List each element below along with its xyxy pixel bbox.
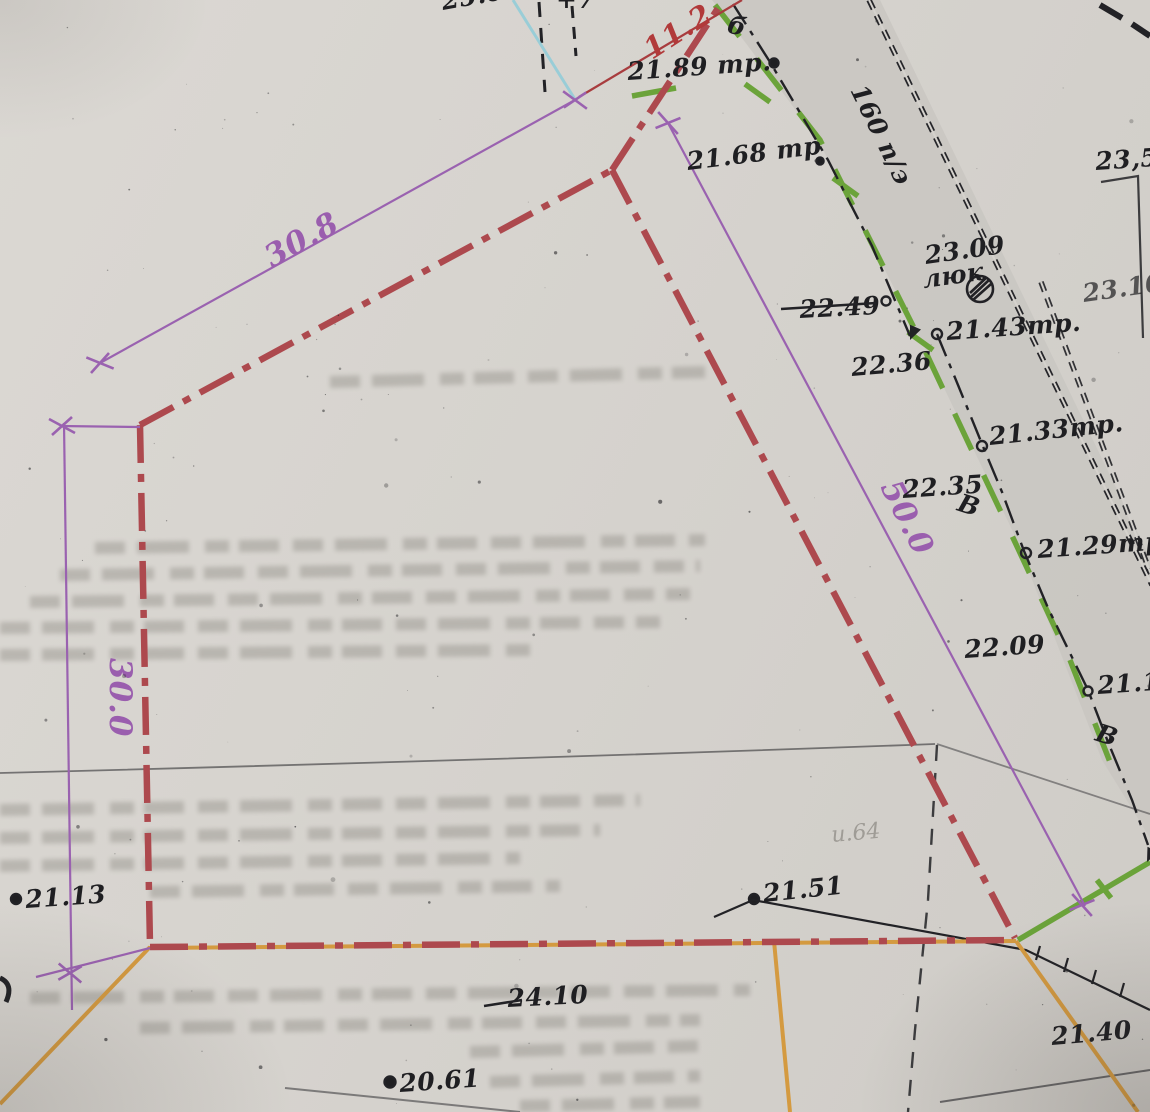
ghost-note-label: и.64: [830, 819, 881, 848]
gas-pipeline-corner-branch: [1018, 862, 1150, 940]
top-dashed-marks: [539, 2, 576, 92]
dim-label-top-side: 30.8: [258, 205, 345, 275]
dim-label-left-side: 30.0: [102, 658, 138, 738]
elev-label-23-5: 23,5: [1093, 143, 1150, 176]
top-partial-mark: +7: [556, 0, 595, 14]
dim-connector-top-left: [60, 426, 140, 427]
elev-label-22-36: 22.36: [849, 346, 933, 382]
plan-canvas: 30.8 11.2 50.0 30.0 21.89 тр. 21.68 тр 1…: [0, 0, 1150, 1112]
right-edge-bracket-line: [1101, 176, 1143, 338]
elev-label-21-68: 21.68 тр: [684, 131, 822, 176]
bleedthrough-text-ghost: [0, 372, 750, 1106]
elev-label-21-40: 21.40: [1049, 1015, 1133, 1051]
road-edge-corner-dashes: [1100, 5, 1150, 36]
elev-label-20-61: 20.61: [397, 1063, 481, 1098]
elev-label-22-09: 22.09: [962, 629, 1046, 664]
elev-label-21-51: 21.51: [761, 871, 845, 908]
elev-label-21-13: 21.13: [23, 879, 107, 914]
elev-label-top-partial: 25.05: [438, 0, 524, 16]
dim-line-30-0: [64, 423, 72, 1010]
survey-plan-scan: 30.8 11.2 50.0 30.0 21.89 тр. 21.68 тр 1…: [0, 0, 1150, 1112]
elev-label-right-edge: 21.1: [1095, 667, 1150, 700]
cadastre-orange-lines: [0, 941, 1138, 1112]
elev-label-23-10: 23.10: [1080, 268, 1150, 308]
left-edge-partial-glyph: [0, 978, 9, 1002]
faint-baseline-left: [0, 744, 935, 773]
